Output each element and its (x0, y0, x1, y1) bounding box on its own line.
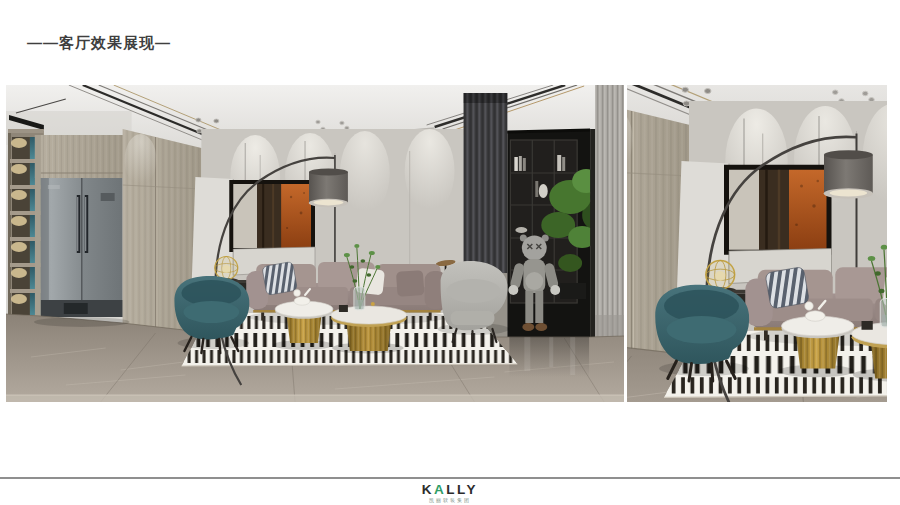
living-room-render-main (6, 85, 624, 402)
brand-accent-letter: A (434, 482, 446, 497)
presentation-slide: ——客厅效果展现— KALLY 凯丽软装集团 (0, 0, 900, 505)
brand-logo: KALLY 凯丽软装集团 (0, 481, 900, 503)
brand-wordmark: KALLY (422, 482, 478, 497)
footer-divider (0, 477, 900, 479)
brand-subtext: 凯丽软装集团 (0, 498, 900, 503)
page-title: ——客厅效果展现— (27, 34, 171, 53)
living-room-render-detail (627, 85, 887, 402)
